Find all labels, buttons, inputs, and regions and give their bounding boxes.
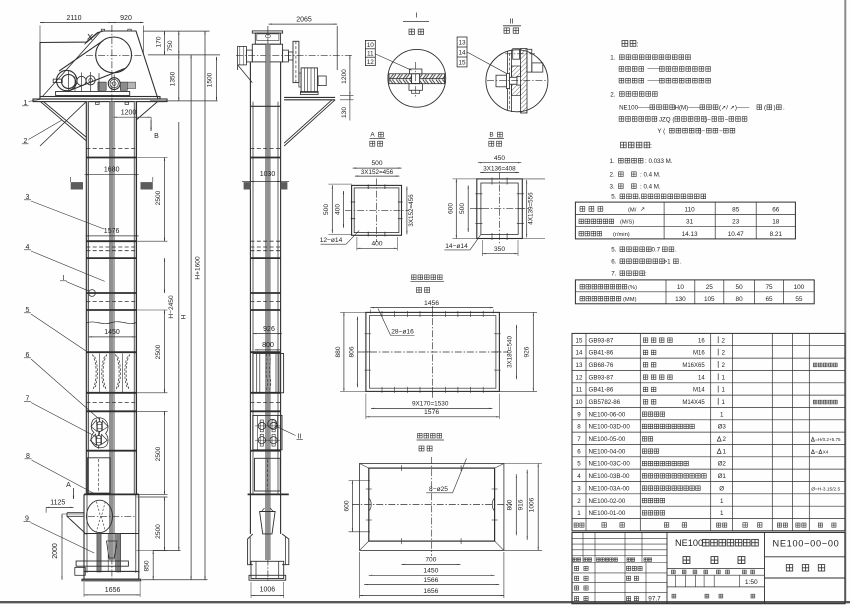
svg-text:9X170=1530: 9X170=1530 — [412, 401, 449, 408]
svg-text:1566: 1566 — [423, 577, 438, 584]
svg-text:5: 5 — [577, 461, 581, 468]
svg-text::: : — [637, 41, 639, 48]
svg-text:55: 55 — [795, 296, 803, 303]
svg-text:500: 500 — [323, 204, 330, 215]
svg-text:−: − — [725, 116, 729, 123]
svg-text:350: 350 — [494, 246, 505, 253]
svg-text:105: 105 — [704, 296, 715, 303]
svg-text:800: 800 — [507, 499, 514, 510]
svg-text:.: . — [675, 247, 677, 254]
svg-text:Ø1: Ø1 — [718, 473, 727, 480]
svg-text:6: 6 — [577, 448, 581, 455]
svg-text:NE100-05-00: NE100-05-00 — [589, 436, 626, 443]
svg-text:12: 12 — [576, 374, 583, 381]
svg-text:1456: 1456 — [424, 300, 439, 307]
svg-text:3: 3 — [577, 485, 581, 492]
svg-text:926: 926 — [524, 346, 531, 357]
svg-text:NE100−00−00: NE100−00−00 — [773, 539, 840, 549]
svg-text:2500: 2500 — [155, 190, 162, 205]
svg-text:3X180=540: 3X180=540 — [506, 336, 513, 368]
svg-text:7: 7 — [577, 436, 581, 443]
svg-text:GB41-86: GB41-86 — [589, 387, 614, 394]
svg-text:NE100-02-00: NE100-02-00 — [589, 498, 626, 505]
svg-text:NE100: NE100 — [675, 538, 703, 548]
svg-text:75: 75 — [765, 284, 773, 291]
svg-text:NE100-04-00: NE100-04-00 — [589, 448, 626, 455]
svg-text:3X136=408: 3X136=408 — [483, 165, 516, 172]
svg-text:(MM): (MM) — [623, 297, 637, 303]
svg-text:8−ø25: 8−ø25 — [429, 486, 448, 493]
svg-text:1: 1 — [721, 399, 725, 406]
svg-text:——: —— — [648, 67, 660, 73]
svg-text:500: 500 — [459, 203, 466, 214]
svg-text:GB41-86: GB41-86 — [589, 350, 614, 357]
svg-text:——: —— — [648, 78, 660, 84]
svg-text:806: 806 — [348, 346, 355, 357]
svg-text:6.: 6. — [611, 259, 616, 266]
svg-text:2500: 2500 — [155, 524, 162, 539]
svg-text::: : — [703, 194, 705, 201]
svg-text:NE100——: NE100—— — [619, 105, 651, 112]
svg-text:Ø=H-3.15/2.5: Ø=H-3.15/2.5 — [811, 486, 840, 492]
svg-text:NE100-03C-00: NE100-03C-00 — [589, 461, 631, 468]
svg-text:1680: 1680 — [104, 167, 120, 174]
svg-text:Ø: Ø — [719, 485, 724, 492]
svg-text:880: 880 — [335, 346, 342, 357]
svg-text:13: 13 — [576, 362, 583, 369]
svg-text:2: 2 — [722, 436, 726, 443]
svg-text:13: 13 — [458, 40, 466, 47]
svg-text:14: 14 — [458, 50, 466, 57]
svg-text:80: 80 — [736, 296, 744, 303]
svg-text:: 0.033 M.: : 0.033 M. — [645, 158, 673, 165]
svg-text:1350: 1350 — [170, 71, 177, 86]
svg-text:66: 66 — [772, 206, 780, 213]
svg-text:2500: 2500 — [155, 446, 162, 461]
svg-text:14: 14 — [576, 350, 583, 357]
svg-text:926: 926 — [263, 326, 275, 333]
svg-text:(r/min): (r/min) — [613, 232, 630, 238]
svg-text:850: 850 — [144, 560, 151, 571]
svg-text:>1: >1 — [664, 259, 672, 266]
svg-text:1200: 1200 — [341, 69, 348, 84]
svg-text:1450: 1450 — [423, 568, 438, 575]
svg-text:5.: 5. — [611, 247, 616, 254]
svg-text:4X139=556: 4X139=556 — [528, 192, 535, 225]
svg-text:1450: 1450 — [104, 329, 120, 336]
svg-text:18: 18 — [772, 219, 780, 226]
svg-text:GB68-76: GB68-76 — [589, 362, 614, 369]
svg-text:1: 1 — [721, 374, 725, 381]
svg-text:−: − — [719, 128, 723, 135]
svg-text:750: 750 — [167, 40, 174, 51]
svg-text:1030: 1030 — [260, 171, 276, 178]
svg-text:2: 2 — [721, 362, 725, 369]
svg-text:=H/0.2+5.75: =H/0.2+5.75 — [815, 437, 841, 442]
svg-text:500: 500 — [371, 160, 382, 167]
svg-text:H: H — [181, 314, 188, 319]
svg-text:50: 50 — [736, 284, 744, 291]
svg-text:12: 12 — [367, 59, 375, 66]
svg-text:GB93-87: GB93-87 — [589, 337, 614, 344]
svg-text:31: 31 — [686, 219, 694, 226]
svg-text:14.13: 14.13 — [682, 231, 698, 238]
svg-text:2065: 2065 — [296, 16, 312, 23]
svg-text:23: 23 — [732, 219, 740, 226]
svg-text:400: 400 — [371, 241, 382, 248]
svg-text:15: 15 — [576, 337, 583, 344]
svg-text:2500: 2500 — [155, 344, 162, 359]
svg-text:0.7: 0.7 — [652, 247, 661, 254]
svg-text:14: 14 — [698, 375, 705, 381]
svg-text:10: 10 — [576, 399, 583, 406]
svg-text:11: 11 — [576, 387, 583, 394]
svg-text:.: . — [680, 259, 682, 266]
svg-text:1006: 1006 — [260, 587, 276, 594]
svg-text:2110: 2110 — [66, 15, 81, 22]
svg-text:1576: 1576 — [424, 409, 439, 416]
svg-text:H−2450: H−2450 — [168, 295, 175, 319]
svg-text:3X152=456: 3X152=456 — [361, 169, 394, 176]
svg-text:16: 16 — [698, 338, 705, 344]
svg-text:1:50: 1:50 — [745, 579, 758, 586]
svg-text:65: 65 — [765, 296, 773, 303]
svg-text:25: 25 — [706, 284, 714, 291]
svg-text:800: 800 — [262, 342, 274, 349]
svg-text:10: 10 — [677, 284, 685, 291]
svg-text:I: I — [415, 11, 417, 20]
svg-text:NE100-01-00: NE100-01-00 — [589, 510, 626, 517]
svg-text:1576: 1576 — [104, 228, 120, 235]
svg-text:1500: 1500 — [207, 72, 214, 87]
svg-text:=: = — [815, 449, 818, 454]
svg-text:10: 10 — [367, 42, 375, 49]
svg-text:600: 600 — [447, 203, 454, 214]
svg-text:97.7: 97.7 — [648, 596, 661, 603]
svg-text:B: B — [489, 132, 493, 139]
svg-text:14−ø14: 14−ø14 — [445, 243, 468, 250]
svg-text:X4: X4 — [823, 449, 829, 454]
svg-text:1: 1 — [720, 411, 724, 418]
svg-text:1.: 1. — [610, 55, 615, 62]
svg-text:8.21: 8.21 — [770, 231, 783, 238]
svg-text:Y (: Y ( — [657, 128, 666, 135]
svg-text:NE100-03D-00: NE100-03D-00 — [589, 424, 631, 431]
svg-text:1: 1 — [722, 448, 726, 455]
svg-text:1.: 1. — [610, 158, 615, 165]
svg-text:1: 1 — [577, 510, 581, 517]
svg-text:1656: 1656 — [105, 587, 121, 594]
svg-text:7.: 7. — [611, 271, 616, 278]
svg-text:1200: 1200 — [121, 110, 137, 117]
svg-text:(M/S): (M/S) — [620, 220, 634, 226]
svg-text:3.: 3. — [610, 184, 615, 191]
svg-text:920: 920 — [120, 15, 132, 22]
svg-text:A: A — [66, 482, 71, 489]
svg-text:(↗/ ↗)——: (↗/ ↗)—— — [719, 105, 750, 112]
svg-text:10.47: 10.47 — [728, 231, 744, 238]
svg-text:1: 1 — [720, 498, 724, 505]
svg-text:130: 130 — [675, 296, 686, 303]
svg-text:2.: 2. — [610, 172, 615, 179]
svg-text:2000: 2000 — [52, 543, 59, 559]
svg-text:1: 1 — [720, 510, 724, 517]
svg-text:400: 400 — [335, 204, 342, 215]
svg-text:H(M)——: H(M)—— — [675, 105, 702, 112]
svg-text:2: 2 — [577, 498, 581, 505]
svg-text:NE100-06-00: NE100-06-00 — [589, 411, 626, 418]
svg-text:Ø2: Ø2 — [718, 461, 727, 468]
svg-text:B: B — [154, 133, 159, 140]
svg-text:130: 130 — [341, 107, 348, 118]
svg-text:2: 2 — [721, 337, 725, 344]
svg-text:: 0.4 M.: : 0.4 M. — [640, 172, 661, 179]
svg-text:.: . — [783, 105, 785, 112]
svg-text:NE100-03A-00: NE100-03A-00 — [589, 485, 630, 492]
svg-text:15: 15 — [458, 60, 466, 67]
svg-text:)−: )− — [705, 116, 711, 123]
svg-text:1125: 1125 — [50, 500, 65, 507]
svg-text:M14X45: M14X45 — [682, 400, 705, 406]
svg-text:H+1600: H+1600 — [195, 256, 202, 280]
svg-text::: : — [645, 271, 647, 278]
svg-text:4: 4 — [577, 473, 581, 480]
svg-text:II: II — [509, 17, 513, 26]
svg-text:1656: 1656 — [423, 588, 438, 595]
svg-text:916: 916 — [518, 499, 525, 510]
svg-text:): ) — [774, 105, 776, 112]
svg-text:170: 170 — [156, 36, 163, 47]
svg-text:9: 9 — [577, 411, 581, 418]
svg-text:(%): (%) — [628, 285, 637, 291]
svg-text:GB5782-86: GB5782-86 — [589, 399, 621, 406]
svg-text:28−ø16: 28−ø16 — [391, 329, 414, 336]
svg-text:2: 2 — [721, 350, 725, 357]
svg-text:NE100-03B-00: NE100-03B-00 — [589, 473, 630, 480]
svg-text:600: 600 — [343, 500, 350, 511]
svg-text:: 0.4 M.: : 0.4 M. — [640, 184, 661, 191]
svg-text:11: 11 — [367, 50, 374, 57]
svg-text:M16X65: M16X65 — [682, 363, 705, 369]
svg-text:)−: )− — [700, 128, 706, 135]
svg-text:85: 85 — [732, 206, 740, 213]
svg-text::: : — [650, 143, 652, 150]
svg-text:M14: M14 — [693, 388, 705, 394]
svg-text:12−ø14: 12−ø14 — [320, 237, 343, 244]
svg-text:Ø3: Ø3 — [718, 424, 727, 431]
svg-text:100: 100 — [794, 284, 805, 291]
svg-text:2.: 2. — [610, 91, 615, 98]
svg-text:,: , — [639, 194, 641, 201]
svg-text:3X152=456: 3X152=456 — [408, 194, 415, 227]
svg-text:110: 110 — [685, 206, 696, 213]
svg-text:1: 1 — [721, 387, 725, 394]
svg-text:450: 450 — [494, 155, 505, 162]
svg-text:A: A — [370, 132, 375, 139]
svg-text:GB93-87: GB93-87 — [589, 374, 614, 381]
svg-text:(M/: (M/ — [628, 207, 637, 213]
svg-text:M16: M16 — [693, 351, 705, 357]
svg-text:8: 8 — [577, 424, 581, 431]
svg-text:700: 700 — [425, 557, 436, 564]
svg-text:1006: 1006 — [529, 497, 536, 512]
svg-text:↗: ↗ — [640, 207, 645, 213]
svg-text:: JZQ (: : JZQ ( — [656, 116, 676, 123]
svg-text:5.: 5. — [611, 194, 616, 201]
